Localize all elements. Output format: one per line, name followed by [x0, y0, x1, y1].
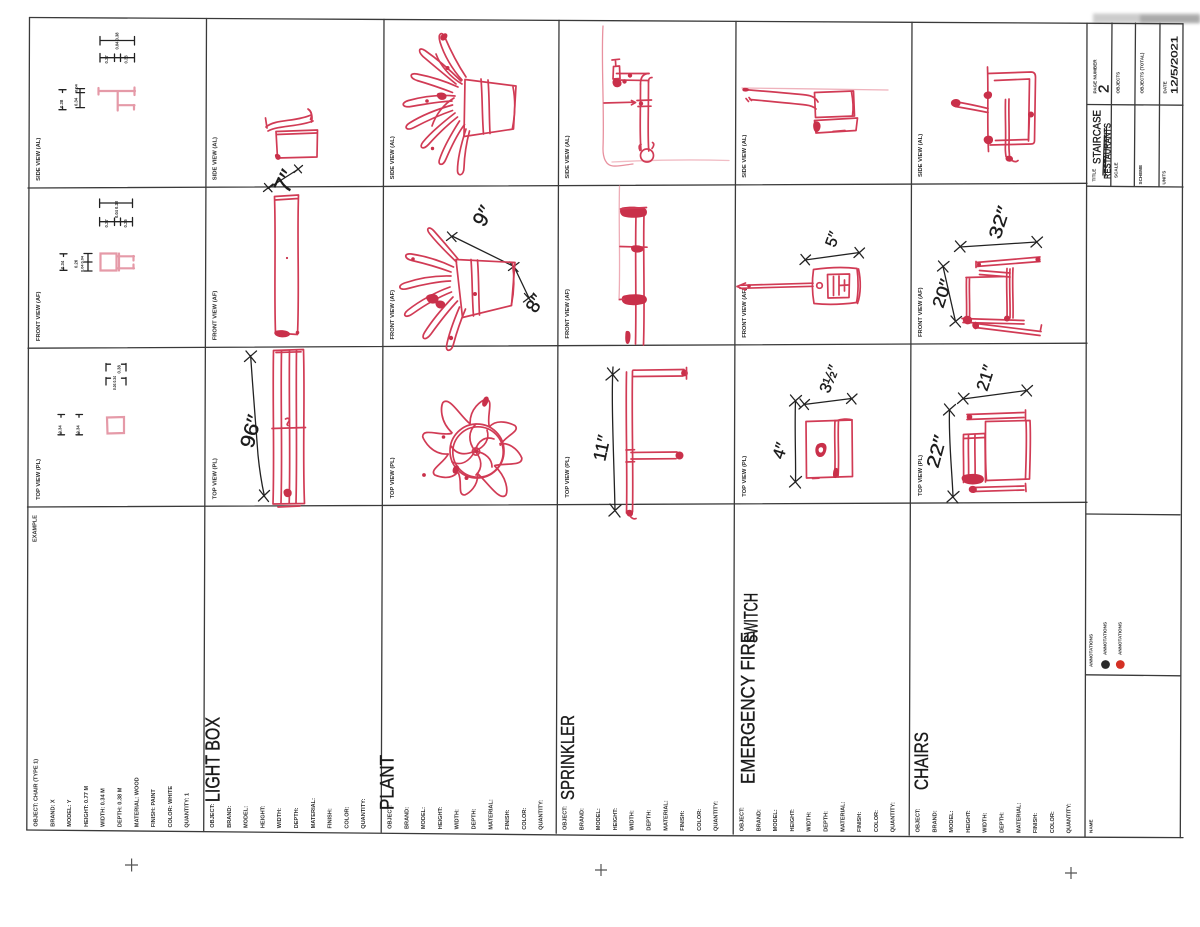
svg-text:0.04 0.04: 0.04 0.04: [81, 255, 85, 272]
svg-text:SIDE VIEW (AL): SIDE VIEW (AL): [742, 135, 748, 178]
svg-text:0.34: 0.34: [60, 260, 65, 269]
svg-text:NAME: NAME: [1089, 819, 1094, 833]
svg-text:MATERIAL:: MATERIAL:: [663, 800, 669, 830]
svg-text:0.04 0.38: 0.04 0.38: [114, 32, 119, 50]
svg-text:WIDTH:: WIDTH:: [277, 808, 283, 828]
svg-text:MODEL:: MODEL:: [596, 808, 602, 830]
svg-text:SIDE VIEW (AL): SIDE VIEW (AL): [390, 136, 396, 179]
svg-text:EMERGENCY FIRE: EMERGENCY FIRE: [739, 632, 760, 784]
svg-text:OBJECTS (TOTAL): OBJECTS (TOTAL): [1140, 52, 1145, 93]
svg-text:TOP VIEW (PL): TOP VIEW (PL): [565, 457, 571, 498]
svg-text:0.34: 0.34: [74, 97, 79, 106]
svg-text:HEIGHT:: HEIGHT:: [966, 810, 972, 833]
svg-text:DEPTH:: DEPTH:: [647, 810, 653, 831]
svg-text:OBJECT:: OBJECT:: [210, 804, 216, 828]
svg-text:FRONT VIEW (AF): FRONT VIEW (AF): [565, 289, 571, 339]
svg-text:COLOR:: COLOR:: [697, 809, 703, 831]
svg-text:OBJECTS: OBJECTS: [1116, 72, 1121, 94]
svg-text:LIGHT BOX: LIGHT BOX: [203, 717, 225, 802]
svg-text:WIDTH:: WIDTH:: [455, 809, 461, 829]
svg-text:FINISH:: FINISH:: [1033, 813, 1039, 833]
svg-text:COLOR:: COLOR:: [1050, 811, 1056, 833]
svg-text:SWITCH: SWITCH: [742, 593, 763, 643]
svg-text:UNITS: UNITS: [1162, 171, 1167, 185]
svg-text:0.04: 0.04: [74, 83, 79, 92]
svg-text:FRONT VIEW (AF): FRONT VIEW (AF): [213, 291, 219, 341]
svg-text:0.37: 0.37: [104, 219, 109, 228]
svg-text:WIDTH: 0.34 M: WIDTH: 0.34 M: [101, 788, 107, 827]
svg-text:MODEL:: MODEL:: [244, 806, 250, 828]
svg-text:TITLE: TITLE: [1092, 169, 1097, 182]
svg-text:FINISH:: FINISH:: [857, 812, 863, 832]
svg-text:MODEL:: MODEL:: [773, 809, 779, 831]
svg-text:WIDTH:: WIDTH:: [807, 811, 813, 831]
svg-text:SIDE VIEW (AL): SIDE VIEW (AL): [565, 135, 571, 178]
svg-text:0.04 0.34: 0.04 0.34: [112, 375, 117, 390]
svg-text:FRONT VIEW (AF): FRONT VIEW (AF): [36, 291, 42, 341]
svg-text:TOP VIEW (PL): TOP VIEW (PL): [742, 456, 748, 497]
svg-text:SPRINKLER: SPRINKLER: [558, 715, 578, 800]
svg-text:0.38: 0.38: [59, 99, 64, 108]
svg-text:BRAND:: BRAND:: [404, 807, 410, 829]
svg-text:FINISH: PAINT: FINISH: PAINT: [151, 789, 157, 828]
svg-text:FRONT VIEW (AF): FRONT VIEW (AF): [390, 290, 396, 340]
svg-text:WIDTH:: WIDTH:: [983, 812, 989, 832]
svg-text:0.36: 0.36: [123, 219, 128, 228]
svg-text:COLOR:: COLOR:: [874, 810, 880, 832]
svg-text:DATE: DATE: [1163, 81, 1168, 93]
svg-text:PLANT: PLANT: [378, 755, 399, 810]
svg-text:FRONT VIEW (AF): FRONT VIEW (AF): [742, 288, 748, 338]
svg-text:BRAND: X: BRAND: X: [50, 799, 56, 827]
svg-text:12/5/2021: 12/5/2021: [1170, 36, 1181, 94]
svg-text:0.34: 0.34: [76, 425, 81, 434]
svg-text:2: 2: [1096, 85, 1113, 93]
svg-text:QUANTITY:: QUANTITY:: [361, 799, 367, 829]
svg-text:HEIGHT:: HEIGHT:: [438, 807, 444, 830]
svg-text:SCHEME: SCHEME: [1138, 165, 1143, 185]
svg-text:MATERIAL:: MATERIAL:: [311, 798, 317, 828]
svg-text:BRAND:: BRAND:: [932, 810, 938, 832]
svg-text:DEPTH:: DEPTH:: [294, 807, 300, 828]
svg-text:MODEL:: MODEL:: [421, 807, 427, 829]
svg-text:WIDTH:: WIDTH:: [630, 810, 636, 830]
svg-text:DEPTH:: DEPTH:: [472, 808, 478, 829]
svg-text:0.34: 0.34: [58, 425, 63, 434]
svg-text:BRAND:: BRAND:: [756, 809, 762, 831]
svg-text:COLOR:: COLOR:: [344, 806, 350, 828]
svg-text:QUANTITY:: QUANTITY:: [539, 800, 545, 830]
svg-text:FINISH:: FINISH:: [328, 808, 334, 828]
svg-text:HEIGHT:: HEIGHT:: [790, 809, 796, 832]
svg-text:0.04 0.38: 0.04 0.38: [114, 200, 119, 218]
svg-text:BRAND:: BRAND:: [579, 808, 585, 830]
svg-text:COLOR: WHITE: COLOR: WHITE: [168, 786, 174, 828]
svg-text:HEIGHT:: HEIGHT:: [260, 806, 266, 829]
svg-text:DEPTH:: DEPTH:: [824, 811, 830, 832]
svg-text:0.26: 0.26: [74, 259, 79, 268]
svg-text:CHAIRS: CHAIRS: [912, 732, 933, 790]
svg-text:TOP VIEW (PL): TOP VIEW (PL): [390, 457, 396, 498]
svg-text:COLOR:: COLOR:: [522, 808, 528, 830]
svg-text:HEIGHT: 0.77 M: HEIGHT: 0.77 M: [84, 786, 90, 827]
svg-text:DEPTH: 0.38 M: DEPTH: 0.38 M: [118, 787, 124, 827]
svg-text:MATERIAL:: MATERIAL:: [1016, 803, 1022, 833]
svg-text:FINISH:: FINISH:: [505, 809, 511, 829]
svg-text:SIDE VIEW (AL): SIDE VIEW (AL): [918, 134, 924, 177]
svg-text:OBJECT: CHAIR (TYPE 1): OBJECT: CHAIR (TYPE 1): [34, 759, 40, 827]
svg-text:SIDE VIEW (AL): SIDE VIEW (AL): [36, 138, 42, 181]
svg-text:DEPTH:: DEPTH:: [1000, 812, 1006, 833]
svg-text:0.37: 0.37: [104, 55, 109, 64]
svg-text:MATERIAL: WOOD: MATERIAL: WOOD: [134, 777, 140, 827]
svg-text:ANNOTATIONS: ANNOTATIONS: [1118, 622, 1123, 655]
svg-text:MATERIAL:: MATERIAL:: [488, 799, 494, 829]
svg-text:OBJECT:: OBJECT:: [916, 808, 922, 832]
svg-text:SCALE: SCALE: [1114, 162, 1119, 178]
svg-text:MODEL: Y: MODEL: Y: [67, 799, 73, 827]
svg-text:ANNOTATIONS: ANNOTATIONS: [1089, 634, 1094, 667]
svg-text:OBJECT:: OBJECT:: [563, 806, 569, 830]
svg-text:OBJECT:: OBJECT:: [740, 807, 746, 831]
svg-text:TOP VIEW (PL): TOP VIEW (PL): [36, 459, 42, 500]
svg-text:MODEL:: MODEL:: [949, 810, 955, 832]
svg-text:QUANTITY:: QUANTITY:: [714, 801, 720, 831]
svg-text:FRONT VIEW (AF): FRONT VIEW (AF): [918, 287, 924, 337]
svg-text:0.36: 0.36: [124, 55, 129, 64]
svg-text:TOP VIEW (PL): TOP VIEW (PL): [213, 458, 219, 499]
svg-text:HEIGHT:: HEIGHT:: [613, 808, 619, 831]
svg-text:QUANTITY: 1: QUANTITY: 1: [185, 793, 191, 828]
svg-text:0.38: 0.38: [117, 365, 122, 374]
svg-text:QUANTITY:: QUANTITY:: [891, 802, 897, 832]
svg-text:MATERIAL:: MATERIAL:: [840, 801, 846, 831]
svg-text:SIDE VIEW (AL): SIDE VIEW (AL): [213, 137, 219, 180]
svg-text:ANNOTATIONS: ANNOTATIONS: [1103, 622, 1108, 655]
svg-text:FINISH:: FINISH:: [680, 810, 686, 830]
svg-text:BRAND:: BRAND:: [227, 806, 233, 828]
svg-text:EXAMPLE: EXAMPLE: [33, 515, 39, 542]
svg-text:QUANTITY:: QUANTITY:: [1067, 803, 1073, 833]
